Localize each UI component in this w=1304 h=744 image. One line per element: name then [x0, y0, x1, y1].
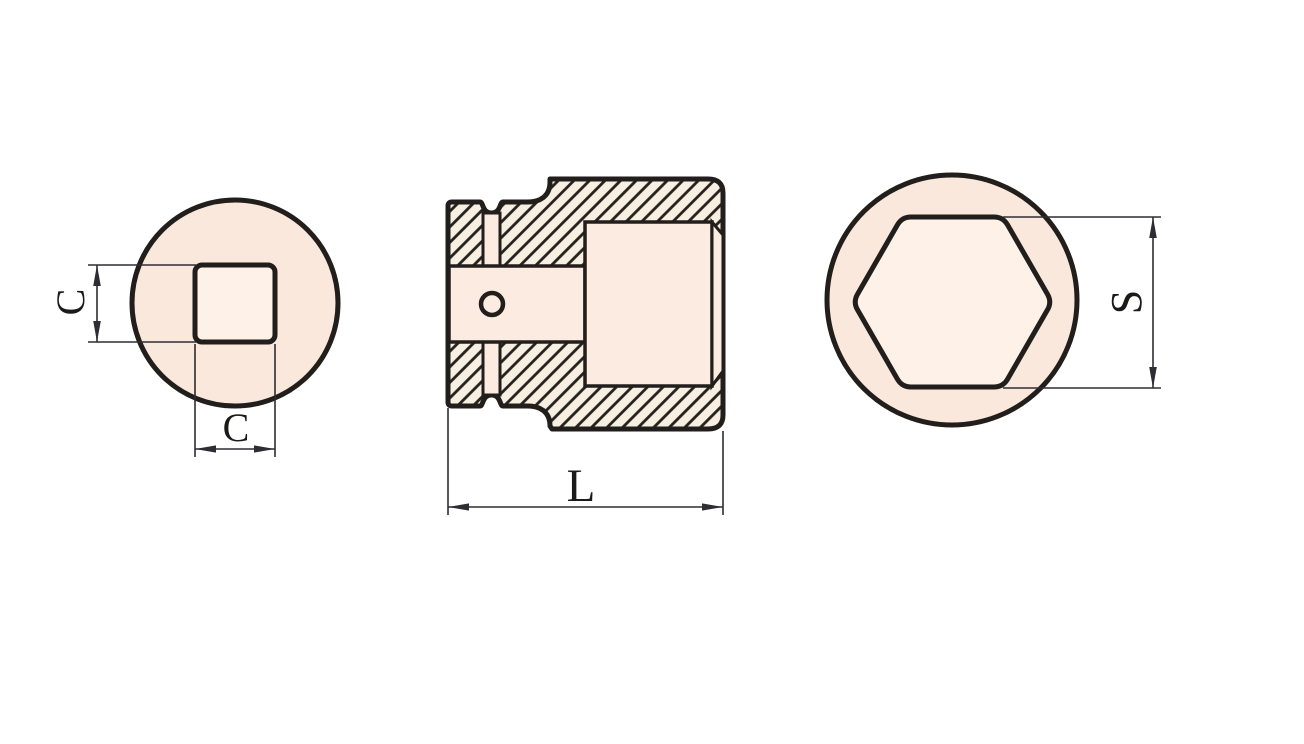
dim-arrow-down [93, 321, 101, 342]
hex-socket-opening [855, 217, 1050, 387]
section-view: L [448, 179, 723, 515]
dim-arrow-up [1149, 217, 1157, 238]
hex-end-view: S [827, 175, 1161, 425]
square-drive-hole [195, 265, 275, 342]
pin-hole [481, 293, 503, 315]
dim-arrow-up [93, 265, 101, 286]
square-drive-recess-section [449, 266, 585, 342]
hex-recess-cavity [585, 222, 712, 386]
socket-drawing: C C L [0, 0, 1304, 744]
dim-arrow-down [1149, 367, 1157, 388]
dim-arrow-right [254, 445, 275, 452]
dim-label-c-horizontal: C [223, 405, 250, 450]
dim-arrow-left [448, 503, 469, 510]
front-view: C C [48, 200, 338, 457]
socket-mouth-chamfer [712, 222, 723, 386]
dim-arrow-right [702, 503, 723, 510]
dim-label-c-vertical: C [48, 289, 93, 316]
dim-label-length: L [567, 460, 596, 512]
dim-arrow-left [195, 445, 216, 452]
dim-label-across-flats: S [1102, 290, 1151, 314]
drawing-canvas: C C L [0, 0, 1304, 744]
snap-ring-groove-bottom [483, 342, 500, 395]
snap-ring-groove-top [483, 213, 500, 266]
